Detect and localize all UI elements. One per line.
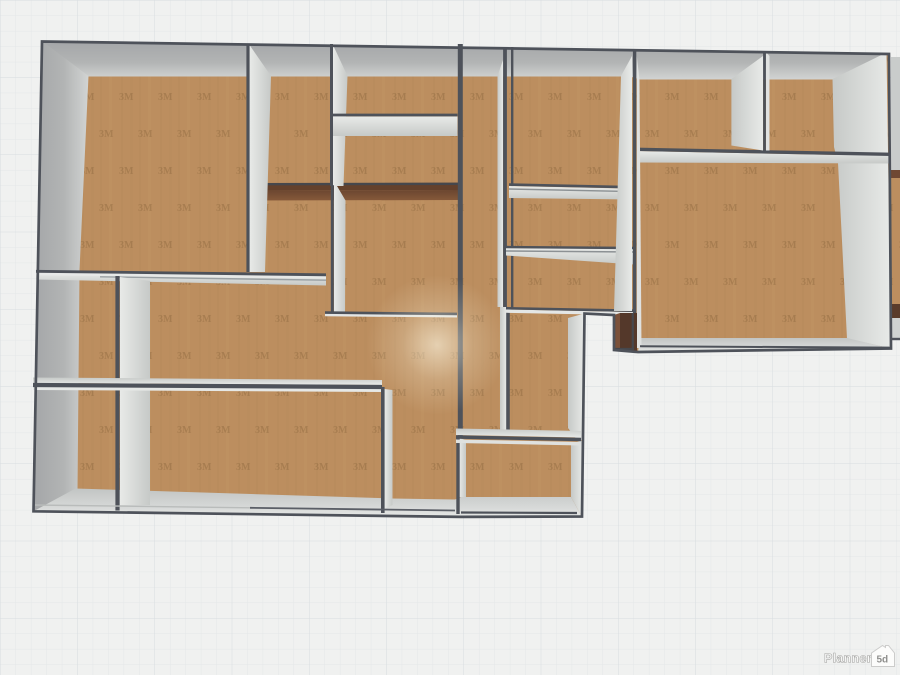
svg-text:Planner: Planner xyxy=(824,652,872,666)
svg-text:5d: 5d xyxy=(877,655,889,666)
